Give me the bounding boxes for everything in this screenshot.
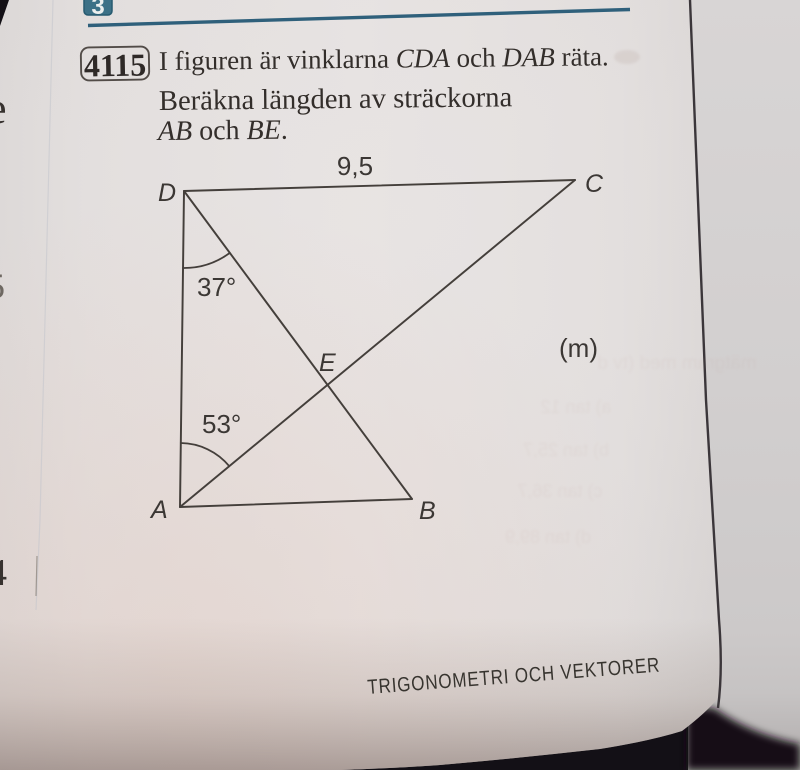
svg-text:d) tan 89,9: d) tan 89,9 — [505, 527, 591, 547]
svg-text:37°: 37° — [197, 272, 236, 302]
svg-text:e: e — [0, 84, 7, 133]
svg-text:I figuren är vinklarna CDA och: I figuren är vinklarna CDA och DAB räta. — [159, 41, 609, 76]
svg-text:5: 5 — [0, 266, 5, 306]
svg-text:4115: 4115 — [84, 46, 147, 83]
svg-text:AB och BE.: AB och BE. — [156, 115, 288, 147]
svg-text:mätgram med (tv d: mätgram med (tv d — [597, 353, 756, 374]
svg-text:53°: 53° — [202, 409, 241, 439]
svg-text:c) tan 36,7: c) tan 36,7 — [517, 481, 602, 501]
svg-text:3: 3 — [91, 0, 104, 20]
svg-text:9,5: 9,5 — [337, 151, 373, 181]
svg-text:D: D — [158, 179, 176, 207]
svg-text:A: A — [149, 496, 168, 524]
svg-text:E: E — [319, 349, 336, 377]
svg-text:a) tan 12: a) tan 12 — [540, 397, 611, 417]
svg-text:4: 4 — [0, 552, 7, 594]
svg-text:B: B — [419, 497, 436, 525]
svg-text:Beräkna längden av sträckorna: Beräkna längden av sträckorna — [159, 82, 513, 117]
svg-text:C: C — [585, 170, 604, 198]
svg-text:b) tan 25,7: b) tan 25,7 — [523, 440, 609, 460]
svg-text:(m): (m) — [559, 333, 598, 363]
